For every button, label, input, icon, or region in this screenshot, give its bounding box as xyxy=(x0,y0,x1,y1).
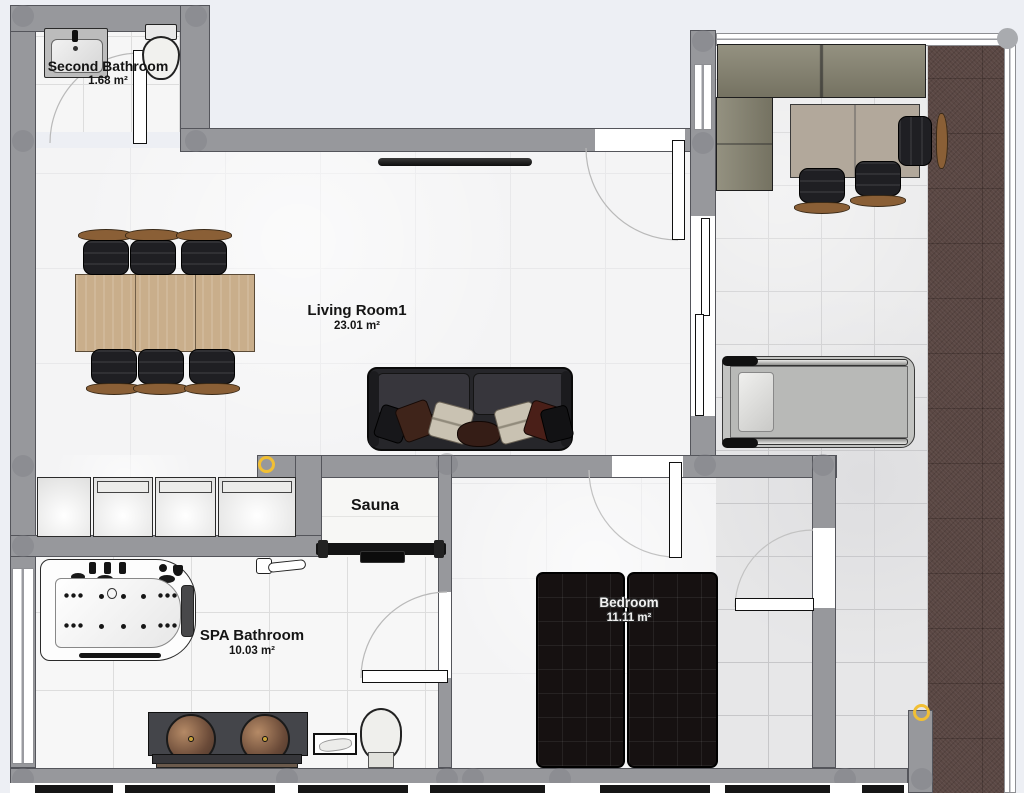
soap-tray[interactable] xyxy=(313,733,357,755)
jacuzzi-jet xyxy=(63,593,83,598)
dining-chair[interactable] xyxy=(189,349,235,395)
room-area: 23.01 m² xyxy=(307,319,406,333)
spa-toilet[interactable] xyxy=(358,708,404,770)
soap xyxy=(318,737,352,753)
chair-seat xyxy=(83,240,129,275)
jacuzzi-jet xyxy=(99,624,104,629)
room-label-bedroom: Bedroom 11.11 m² xyxy=(599,595,658,625)
bedroom-door-leaf-left[interactable] xyxy=(669,462,682,558)
wall-node[interactable] xyxy=(185,5,207,27)
room-name: SPA Bathroom xyxy=(200,628,304,644)
cutoff-object xyxy=(430,785,545,793)
wall-mid-horizontal[interactable] xyxy=(257,455,837,478)
sink-drain xyxy=(188,736,194,742)
room-area: 10.03 m² xyxy=(200,644,304,658)
closet-unit[interactable] xyxy=(93,477,153,537)
jacuzzi-knob xyxy=(119,562,126,574)
chair-backrest xyxy=(184,383,240,395)
drain-icon xyxy=(73,46,78,51)
dining-chair[interactable] xyxy=(181,229,227,275)
sliding-door-leaf-b[interactable] xyxy=(695,314,704,416)
jacuzzi-jet xyxy=(141,624,146,629)
chair-seat xyxy=(855,161,901,196)
wall-node[interactable] xyxy=(692,132,714,154)
window-office-wall[interactable] xyxy=(694,64,712,130)
closet-unit[interactable] xyxy=(218,477,296,537)
cutoff-object xyxy=(298,785,408,793)
treadmill-rail xyxy=(732,359,908,366)
sink-drain xyxy=(262,736,268,742)
desk-chair[interactable] xyxy=(898,116,938,166)
chair-seat xyxy=(898,116,932,166)
desk-chair[interactable] xyxy=(855,161,901,207)
jacuzzi-knob xyxy=(104,562,111,574)
toilet-base xyxy=(368,752,394,768)
jacuzzi-tub[interactable] xyxy=(40,559,196,661)
spa-door-opening xyxy=(439,592,451,678)
hand-shower-handle xyxy=(268,559,307,573)
entry-door-leaf[interactable] xyxy=(672,140,685,240)
office-sofa-left[interactable] xyxy=(716,97,773,191)
corner-drag-handle[interactable] xyxy=(997,28,1018,49)
jacuzzi-jet xyxy=(157,593,177,598)
jacuzzi-drain-ring xyxy=(107,588,117,599)
cutoff-object xyxy=(35,785,113,793)
cutoff-object xyxy=(725,785,830,793)
wall-node[interactable] xyxy=(692,30,714,52)
desk-chair[interactable] xyxy=(799,168,845,214)
double-sink-vanity[interactable] xyxy=(148,710,308,768)
chair-seat xyxy=(130,240,176,275)
chair-seat xyxy=(799,168,845,203)
closet-unit[interactable] xyxy=(37,477,91,537)
chair-backrest xyxy=(936,113,948,169)
jacuzzi-knob xyxy=(89,562,96,574)
dining-table[interactable] xyxy=(75,274,255,352)
treadmill-wheel xyxy=(722,356,758,366)
selection-ring-marker[interactable] xyxy=(258,456,275,473)
sauna-heater-handle xyxy=(360,551,405,563)
treadmill[interactable] xyxy=(722,356,915,448)
room-name: Second Bathroom xyxy=(48,58,169,74)
wall-node[interactable] xyxy=(12,130,34,152)
bedroom-door-leaf-right[interactable] xyxy=(735,598,814,611)
jacuzzi-headrest xyxy=(181,585,194,637)
window-right-terrace[interactable] xyxy=(1004,33,1016,793)
sofa[interactable] xyxy=(367,367,573,451)
chair-seat xyxy=(189,349,235,384)
room-name: Sauna xyxy=(351,498,399,514)
jacuzzi-base-rail xyxy=(79,653,161,658)
wall-node[interactable] xyxy=(911,768,933,790)
dining-chair[interactable] xyxy=(83,229,129,275)
jacuzzi-jet xyxy=(157,623,177,628)
closet-unit[interactable] xyxy=(155,477,216,537)
room-label-sauna: Sauna xyxy=(351,498,399,514)
jacuzzi-jet xyxy=(99,594,104,599)
jacuzzi-knob xyxy=(159,564,167,572)
wall-node[interactable] xyxy=(12,535,34,557)
room-label-living-room: Living Room1 23.01 m² xyxy=(307,303,406,333)
closet-shelf xyxy=(159,481,212,493)
sauna-heater-end xyxy=(318,540,328,558)
treadmill-wheel xyxy=(722,438,758,448)
cutoff-object xyxy=(125,785,275,793)
room-name: Bedroom xyxy=(599,595,658,611)
room-area: 1.68 m² xyxy=(48,74,169,88)
wall-node[interactable] xyxy=(12,455,34,477)
jacuzzi-jet xyxy=(63,623,83,628)
sauna-heater-end xyxy=(434,540,444,558)
bedroom-door-opening-right xyxy=(813,528,835,608)
wall-node[interactable] xyxy=(185,130,207,152)
tv-wall-mounted[interactable] xyxy=(378,158,532,166)
faucet-icon xyxy=(72,30,78,42)
jacuzzi-jet xyxy=(121,594,126,599)
wall-node[interactable] xyxy=(436,453,458,475)
wall-node[interactable] xyxy=(694,454,716,476)
office-sofa-top[interactable] xyxy=(717,44,926,98)
chair-seat xyxy=(138,349,184,384)
sofa-pillow xyxy=(457,421,501,447)
room-area: 11.11 m² xyxy=(599,611,658,625)
cutoff-object xyxy=(862,785,904,793)
chair-backrest xyxy=(794,202,850,214)
closet-shelf xyxy=(97,481,149,493)
room-label-second-bathroom: Second Bathroom 1.68 m² xyxy=(48,58,169,88)
window-left-spa[interactable] xyxy=(12,568,34,764)
wall-bedroom-right[interactable] xyxy=(812,455,836,768)
vanity-plinth xyxy=(156,763,298,768)
selection-ring-marker[interactable] xyxy=(913,704,930,721)
room-name: Living Room1 xyxy=(307,303,406,319)
sliding-door-leaf-a[interactable] xyxy=(701,218,710,316)
room-label-spa-bathroom: SPA Bathroom 10.03 m² xyxy=(200,628,304,658)
hand-shower[interactable] xyxy=(256,555,308,577)
wall-below-closets[interactable] xyxy=(10,535,322,557)
wall-node[interactable] xyxy=(812,454,834,476)
dining-chair[interactable] xyxy=(138,349,184,395)
dining-chair[interactable] xyxy=(91,349,137,395)
treadmill-pad xyxy=(738,372,774,432)
chair-backrest xyxy=(133,383,189,395)
cutoff-object xyxy=(600,785,710,793)
sauna-heater[interactable] xyxy=(316,543,446,555)
chair-seat xyxy=(181,240,227,275)
jacuzzi-basin xyxy=(55,578,181,648)
wall-node[interactable] xyxy=(12,5,34,27)
dining-chair[interactable] xyxy=(130,229,176,275)
chair-backrest xyxy=(850,195,906,207)
jacuzzi-knob xyxy=(173,565,183,576)
spa-door-leaf[interactable] xyxy=(362,670,448,683)
jacuzzi-jet xyxy=(141,594,146,599)
chair-seat xyxy=(91,349,137,384)
closet-shelf xyxy=(222,481,292,493)
treadmill-rail xyxy=(732,438,908,445)
jacuzzi-jet xyxy=(121,624,126,629)
floor-plan-canvas[interactable]: Second Bathroom 1.68 m² Living Room1 23.… xyxy=(0,0,1024,793)
